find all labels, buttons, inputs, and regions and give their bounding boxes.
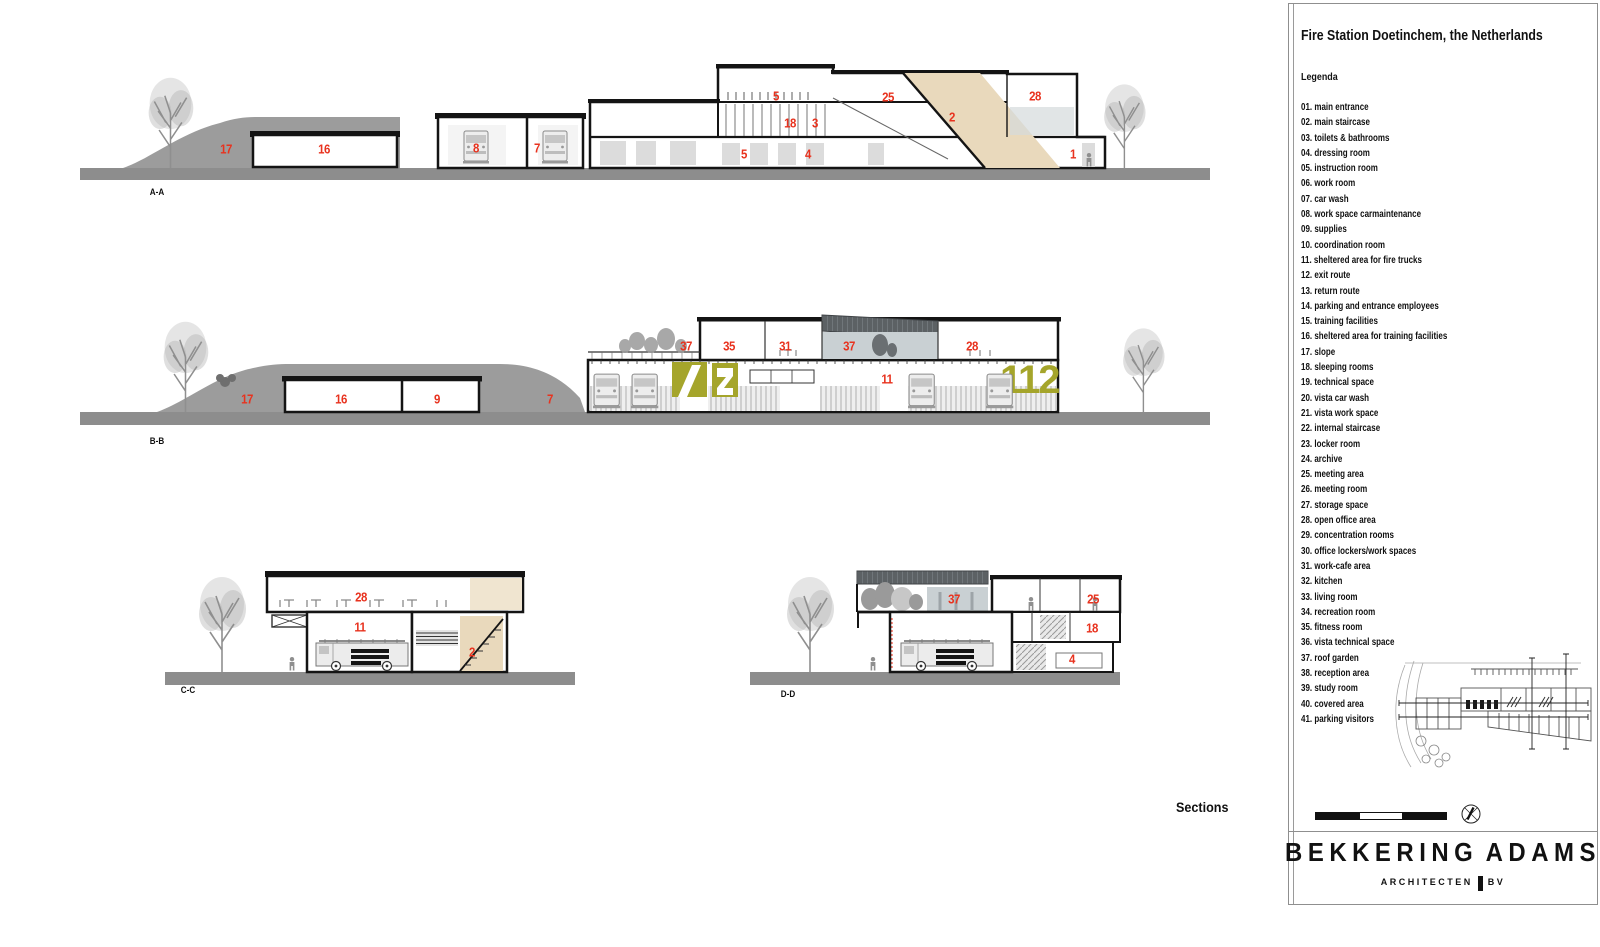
building-training-shelter — [250, 131, 400, 167]
fire-truck-side-icon — [901, 639, 993, 671]
terrain — [165, 672, 575, 685]
scale-segment — [1360, 813, 1402, 819]
section-dd-drawing — [740, 545, 1140, 693]
legend-title: Legenda — [1301, 71, 1338, 83]
legend-item: 29. concentration rooms — [1301, 528, 1525, 543]
logo-sub-2: BV — [1488, 878, 1506, 887]
architectural-sheet: 112 — [0, 0, 1600, 947]
person-icon — [290, 657, 295, 671]
terrain — [750, 672, 1120, 685]
legend-item: 22. internal staircase — [1301, 421, 1525, 436]
legend-item: 24. archive — [1301, 452, 1525, 467]
legend-item: 04. dressing room — [1301, 146, 1525, 161]
building-carwash-workspace — [435, 113, 586, 168]
logo-word-1: BEKKERING — [1285, 839, 1478, 865]
legend-item: 08. work space carmaintenance — [1301, 207, 1525, 222]
legend-item: 31. work-cafe area — [1301, 559, 1525, 574]
north-arrow-icon — [1459, 802, 1483, 826]
legend-item: 21. vista work space — [1301, 406, 1525, 421]
legend-item: 07. car wash — [1301, 192, 1525, 207]
site-hatch — [1507, 697, 1553, 707]
building-training-shelter — [282, 376, 482, 412]
legend-item: 06. work room — [1301, 176, 1525, 191]
scale-segment — [1316, 813, 1360, 819]
legend-item: 28. open office area — [1301, 513, 1525, 528]
fire-truck-side-icon — [316, 639, 408, 671]
tree-icon — [199, 577, 246, 672]
legend-item: 25. meeting area — [1301, 467, 1525, 482]
site-trees — [1416, 736, 1450, 767]
legend-item: 11. sheltered area for fire trucks — [1301, 253, 1525, 268]
graphic-112-left — [672, 362, 738, 397]
section-aa-drawing — [80, 55, 1210, 187]
section-cc-drawing — [165, 545, 585, 693]
legend-item: 01. main entrance — [1301, 100, 1525, 115]
roof-plants-icon — [861, 582, 923, 611]
legend-item: 10. coordination room — [1301, 238, 1525, 253]
building-main — [588, 64, 1105, 168]
architect-logo: BEKKERING ADAMS ARCHITECTEN BV — [1289, 831, 1597, 904]
roof-plants-icon — [619, 328, 687, 353]
legend-item: 12. exit route — [1301, 268, 1525, 283]
dark-roof — [857, 571, 988, 584]
panel-inner-border — [1293, 4, 1294, 904]
site-buildings — [1416, 669, 1591, 741]
legend-list: 01. main entrance02. main staircase03. t… — [1301, 100, 1525, 727]
building — [857, 571, 1122, 672]
building-main: 112 — [588, 315, 1061, 412]
legend-item: 14. parking and entrance employees — [1301, 299, 1525, 314]
legend-item: 33. living room — [1301, 590, 1525, 605]
legend-item: 23. locker room — [1301, 437, 1525, 452]
legend-item: 30. office lockers/work spaces — [1301, 544, 1525, 559]
building — [265, 571, 525, 672]
logo-bar-icon — [1478, 876, 1483, 891]
logo-sub-1: ARCHITECTEN — [1381, 878, 1473, 887]
logo-row-1: BEKKERING ADAMS — [1301, 839, 1584, 865]
section-bb-drawing: 112 — [80, 300, 1210, 440]
legend-item: 20. vista car wash — [1301, 391, 1525, 406]
legend-item: 19. technical space — [1301, 375, 1525, 390]
logo-row-2: ARCHITECTEN BV — [1289, 872, 1597, 887]
scale-bar — [1315, 812, 1447, 820]
logo-word-2: ADAMS — [1486, 839, 1600, 865]
legend-item: 34. recreation room — [1301, 605, 1525, 620]
key-siteplan — [1381, 641, 1599, 771]
scale-segment — [1402, 813, 1446, 819]
person-icon — [871, 657, 876, 671]
legend-item: 03. toilets & bathrooms — [1301, 131, 1525, 146]
sheet-title: Fire Station Doetinchem, the Netherlands — [1301, 28, 1543, 44]
legend-item: 05. instruction room — [1301, 161, 1525, 176]
title-legend-panel: Fire Station Doetinchem, the Netherlands… — [1288, 3, 1598, 905]
legend-item: 27. storage space — [1301, 498, 1525, 513]
legend-item: 17. slope — [1301, 345, 1525, 360]
legend-item: 15. training facilities — [1301, 314, 1525, 329]
sections-title: Sections — [1176, 799, 1229, 815]
legend-item: 09. supplies — [1301, 222, 1525, 237]
legend-item: 02. main staircase — [1301, 115, 1525, 130]
legend-item: 16. sheltered area for training faciliti… — [1301, 329, 1525, 344]
legend-item: 32. kitchen — [1301, 574, 1525, 589]
tree-icon — [787, 577, 834, 672]
legend-item: 18. sleeping rooms — [1301, 360, 1525, 375]
section-mark-A-A: A-A — [150, 187, 164, 197]
legend-item: 26. meeting room — [1301, 482, 1525, 497]
site-truck-bays — [1466, 700, 1498, 709]
legend-item: 13. return route — [1301, 284, 1525, 299]
legend-item: 35. fitness room — [1301, 620, 1525, 635]
